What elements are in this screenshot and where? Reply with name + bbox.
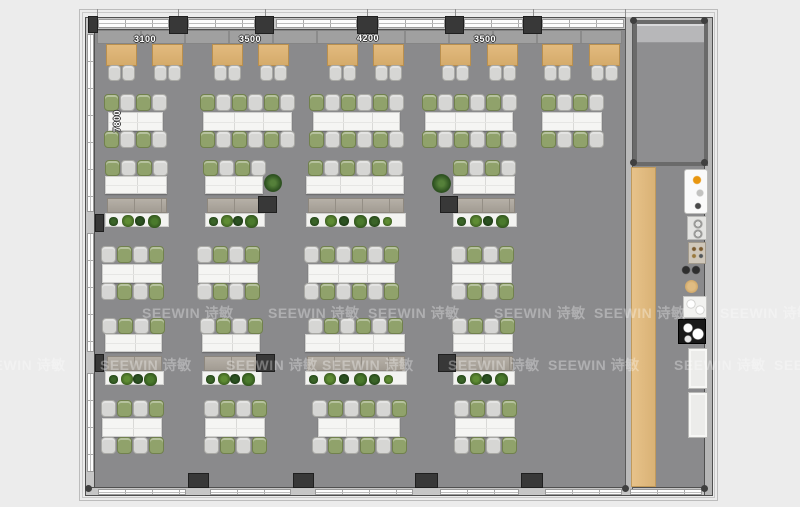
booth-table [327, 44, 358, 66]
office-chair [320, 246, 335, 263]
office-chair [468, 318, 483, 334]
storage-cabinet [455, 198, 515, 213]
structural-column [255, 16, 274, 34]
office-chair [153, 160, 168, 176]
watermark: SEEWIN 诗敏 [226, 355, 318, 375]
office-chair [133, 283, 148, 300]
desk [305, 334, 405, 352]
booth-table [487, 44, 518, 66]
office-chair [499, 283, 514, 300]
office-chair [104, 131, 119, 148]
office-chair [245, 283, 260, 300]
plant [369, 216, 380, 227]
office-chair [197, 283, 212, 300]
office-chair [486, 94, 501, 111]
booth-chair [154, 65, 167, 81]
plant [496, 215, 509, 228]
plant [483, 216, 493, 226]
office-chair [384, 283, 399, 300]
office-chair [454, 131, 469, 148]
booth-chair [214, 65, 227, 81]
office-chair [213, 246, 228, 263]
office-chair [453, 160, 468, 176]
office-chair [101, 246, 116, 263]
booth-chair [108, 65, 121, 81]
kitchen-counter [684, 169, 708, 214]
watermark: SEEWIN 诗敏 [268, 303, 360, 323]
structural-column [169, 16, 188, 34]
office-chair [200, 131, 215, 148]
plant [245, 215, 258, 228]
desk [203, 112, 292, 131]
office-chair [392, 400, 407, 417]
plant [109, 217, 118, 226]
office-chair [352, 246, 367, 263]
office-chair [136, 131, 151, 148]
office-chair [557, 131, 572, 148]
office-chair [232, 131, 247, 148]
office-chair [152, 94, 167, 111]
plant [206, 375, 215, 384]
potted-plant [264, 174, 282, 192]
window-segment [188, 19, 255, 28]
plant [221, 215, 233, 227]
window-segment [98, 489, 186, 495]
office-chair [133, 437, 148, 454]
desk [306, 176, 404, 194]
office-chair [486, 400, 501, 417]
watermark: SEEWIN 诗敏 [100, 355, 192, 375]
office-chair [368, 246, 383, 263]
office-chair [264, 94, 279, 111]
window-segment [440, 489, 519, 495]
office-chair [470, 400, 485, 417]
office-chair [360, 400, 375, 417]
office-chair [344, 400, 359, 417]
office-chair [101, 437, 116, 454]
office-chair [325, 131, 340, 148]
office-chair [470, 94, 485, 111]
office-chair [229, 283, 244, 300]
office-chair [308, 160, 323, 176]
desk [453, 334, 513, 352]
office-chair [220, 437, 235, 454]
office-chair [117, 283, 132, 300]
office-chair [104, 94, 119, 111]
booth-chair [591, 65, 604, 81]
structural-column [88, 16, 98, 33]
office-chair [376, 437, 391, 454]
office-chair [149, 283, 164, 300]
booth-chair [503, 65, 516, 81]
window-segment [87, 233, 94, 352]
wall-joint-dot [630, 17, 637, 24]
office-chair [389, 94, 404, 111]
booth-table [106, 44, 137, 66]
booth-table [589, 44, 620, 66]
plant [309, 375, 318, 384]
office-chair [200, 94, 215, 111]
office-chair [325, 94, 340, 111]
office-chair [204, 400, 219, 417]
office-chair [251, 160, 266, 176]
watermark: SEEWIN 诗敏 [448, 355, 540, 375]
booth-chair [489, 65, 502, 81]
potted-plant [432, 174, 451, 193]
meeting-room-glass-band [637, 24, 704, 43]
booth-chair [122, 65, 135, 81]
office-chair [376, 400, 391, 417]
office-chair [118, 318, 133, 334]
plant [233, 216, 243, 226]
window-segment [210, 489, 291, 495]
office-chair [388, 160, 403, 176]
booth-chair [329, 65, 342, 81]
office-chair [149, 400, 164, 417]
office-chair [344, 437, 359, 454]
office-chair [252, 437, 267, 454]
kitchen-dish [683, 296, 707, 318]
office-chair [152, 131, 167, 148]
plant [209, 217, 218, 226]
planter-box [205, 213, 265, 227]
booth-table [440, 44, 471, 66]
office-chair [470, 437, 485, 454]
window-segment [315, 489, 413, 495]
office-chair [541, 131, 556, 148]
office-chair [573, 131, 588, 148]
office-chair [483, 283, 498, 300]
structural-column [523, 16, 542, 34]
plant [470, 215, 482, 227]
office-chair [357, 131, 372, 148]
office-chair [232, 94, 247, 111]
wall-joint-dot [622, 485, 629, 492]
window-segment [542, 19, 624, 28]
plant [339, 216, 349, 226]
structural-column [521, 473, 543, 488]
office-chair [502, 437, 517, 454]
plant [109, 375, 118, 384]
office-chair [470, 131, 485, 148]
window-segment [545, 489, 622, 495]
dimension-tick [625, 9, 626, 17]
office-chair [340, 160, 355, 176]
watermark: SEEWIN 诗敏 [548, 355, 640, 375]
structural-column [258, 196, 277, 213]
storage-cabinet [207, 198, 263, 213]
office-chair [312, 437, 327, 454]
office-chair [248, 94, 263, 111]
desk [542, 112, 602, 131]
office-chair [573, 94, 588, 111]
booth-table [373, 44, 404, 66]
office-chair [149, 246, 164, 263]
wall-joint-dot [630, 159, 637, 166]
desk [198, 264, 258, 283]
watermark: SEEWIN 诗敏 [322, 355, 414, 375]
office-chair [336, 246, 351, 263]
office-chair [220, 400, 235, 417]
office-chair [102, 318, 117, 334]
office-chair [422, 94, 437, 111]
office-chair [120, 94, 135, 111]
office-chair [117, 246, 132, 263]
office-chair [486, 131, 501, 148]
office-chair [373, 94, 388, 111]
plant [354, 215, 367, 228]
plant [339, 374, 349, 384]
office-chair [438, 94, 453, 111]
office-chair [304, 283, 319, 300]
office-chair [245, 246, 260, 263]
kitchen-round-stool [685, 280, 698, 293]
booth-chair [605, 65, 618, 81]
booth-chair [544, 65, 557, 81]
plant [369, 374, 380, 385]
office-chair [438, 131, 453, 148]
structural-column [188, 473, 209, 488]
desk [455, 418, 515, 437]
office-chair [136, 94, 151, 111]
structural-column [440, 196, 458, 213]
office-chair [105, 160, 120, 176]
office-chair [304, 246, 319, 263]
office-chair [324, 160, 339, 176]
window-segment [98, 19, 169, 28]
watermark: SEEWIN 诗敏 [674, 355, 766, 375]
office-chair [389, 131, 404, 148]
booth-chair [389, 65, 402, 81]
watermark: SEEWIN 诗敏 [774, 355, 800, 375]
office-chair [133, 246, 148, 263]
window-segment [464, 19, 523, 28]
booth-table [212, 44, 243, 66]
watermark: SEEWIN 诗敏 [720, 303, 800, 323]
wall-joint-dot [701, 17, 708, 24]
wall-joint-dot [701, 159, 708, 166]
office-chair [101, 400, 116, 417]
plant [325, 215, 337, 227]
window-segment [630, 489, 702, 495]
plant [310, 217, 319, 226]
desk [105, 176, 167, 194]
dimension-label-top: 4200 [357, 33, 379, 43]
plant [133, 374, 143, 384]
watermark: SEEWIN 诗敏 [142, 303, 234, 323]
office-chair [451, 283, 466, 300]
office-chair [252, 400, 267, 417]
office-chair [541, 94, 556, 111]
office-chair [236, 437, 251, 454]
office-chair [422, 131, 437, 148]
desk [102, 418, 162, 437]
office-chair [373, 131, 388, 148]
office-chair [133, 400, 148, 417]
office-chair [204, 437, 219, 454]
office-chair [235, 160, 250, 176]
booth-chair [456, 65, 469, 81]
office-chair [236, 400, 251, 417]
structural-column [445, 16, 464, 34]
booth-table [542, 44, 573, 66]
plant [383, 217, 392, 226]
window-segment [276, 19, 357, 28]
office-chair [248, 318, 263, 334]
office-chair [309, 131, 324, 148]
desk [453, 176, 515, 194]
planter-box [453, 213, 517, 227]
booth-chair [442, 65, 455, 81]
desk [452, 264, 512, 283]
office-chair [589, 131, 604, 148]
window-segment [87, 34, 94, 212]
office-chair [213, 283, 228, 300]
office-chair [309, 94, 324, 111]
office-chair [392, 437, 407, 454]
desk [105, 334, 162, 352]
dimension-label-top: 3500 [239, 34, 261, 44]
desk [205, 418, 265, 437]
booth-table [258, 44, 289, 66]
plant [135, 216, 145, 226]
plant [482, 374, 492, 384]
dimension-label-top: 3500 [474, 34, 496, 44]
office-chair [216, 131, 231, 148]
office-chair [454, 437, 469, 454]
office-chair [454, 94, 469, 111]
wood-floor-strip [631, 167, 656, 487]
office-chair [280, 94, 295, 111]
office-chair [341, 131, 356, 148]
kitchen-appliance [688, 242, 706, 264]
office-chair [101, 283, 116, 300]
watermark: SEEWIN 诗敏 [594, 303, 686, 323]
office-chair [502, 131, 517, 148]
office-chair [467, 246, 482, 263]
planter-box [306, 213, 406, 227]
office-chair [137, 160, 152, 176]
office-chair [384, 246, 399, 263]
wall-joint-dot [85, 485, 92, 492]
office-chair [312, 400, 327, 417]
office-chair [216, 94, 231, 111]
wall-joint-dot [701, 485, 708, 492]
dimension-label-left: 7800 [112, 110, 122, 132]
office-chair [501, 160, 516, 176]
office-chair [372, 160, 387, 176]
office-chair [121, 160, 136, 176]
office-chair [203, 160, 218, 176]
desk [202, 334, 260, 352]
office-chair [117, 437, 132, 454]
window-segment [87, 373, 94, 472]
office-chair [328, 400, 343, 417]
office-chair [357, 94, 372, 111]
office-chair [467, 283, 482, 300]
office-chair [356, 160, 371, 176]
planter-box [105, 213, 169, 227]
desk [425, 112, 513, 131]
kitchen-sink [687, 216, 707, 240]
office-chair [117, 400, 132, 417]
booth-chair [228, 65, 241, 81]
plant [457, 217, 466, 226]
floor-plan-image: 7800 SEEWIN 诗敏SEEWIN 诗敏SEEWIN 诗敏SEEWIN 诗… [0, 0, 800, 507]
structural-column [357, 16, 378, 34]
structural-column [95, 214, 104, 232]
office-chair [368, 283, 383, 300]
plant [122, 215, 134, 227]
office-chair [589, 94, 604, 111]
office-chair [328, 437, 343, 454]
office-chair [120, 131, 135, 148]
office-chair [483, 246, 498, 263]
office-chair [197, 246, 212, 263]
office-chair [557, 94, 572, 111]
desk [318, 418, 400, 437]
plant [148, 215, 161, 228]
desk [205, 176, 263, 194]
office-chair [485, 160, 500, 176]
kitchen-cabinet [688, 392, 708, 438]
office-chair [502, 94, 517, 111]
office-chair [341, 94, 356, 111]
kitchen-vents [681, 265, 701, 275]
plant [457, 375, 466, 384]
desk [308, 264, 395, 283]
office-chair [502, 400, 517, 417]
booth-chair [375, 65, 388, 81]
plant [230, 374, 240, 384]
desk [102, 264, 162, 283]
booth-chair [343, 65, 356, 81]
meeting-room [633, 20, 708, 166]
office-chair [264, 131, 279, 148]
booth-table [152, 44, 183, 66]
office-chair [352, 283, 367, 300]
office-chair [219, 160, 234, 176]
watermark: SEEWIN 诗敏 [0, 355, 66, 375]
office-chair [320, 283, 335, 300]
office-chair [469, 160, 484, 176]
office-chair [336, 283, 351, 300]
office-chair [229, 246, 244, 263]
storage-cabinet [107, 198, 167, 213]
watermark: SEEWIN 诗敏 [368, 303, 460, 323]
storage-cabinet [308, 198, 404, 213]
desk [313, 112, 400, 131]
office-chair [486, 437, 501, 454]
window-segment [378, 19, 445, 28]
office-chair [451, 246, 466, 263]
watermark: SEEWIN 诗敏 [494, 303, 586, 323]
booth-chair [168, 65, 181, 81]
dimension-label-top: 3100 [134, 34, 156, 44]
structural-column [293, 473, 314, 488]
office-chair [499, 246, 514, 263]
office-chair [280, 131, 295, 148]
office-chair [360, 437, 375, 454]
office-chair [454, 400, 469, 417]
structural-column [415, 473, 438, 488]
booth-chair [260, 65, 273, 81]
office-chair [248, 131, 263, 148]
office-chair [149, 437, 164, 454]
booth-chair [558, 65, 571, 81]
floor-plan: 7800 SEEWIN 诗敏SEEWIN 诗敏SEEWIN 诗敏SEEWIN 诗… [0, 0, 800, 507]
plant [384, 375, 393, 384]
